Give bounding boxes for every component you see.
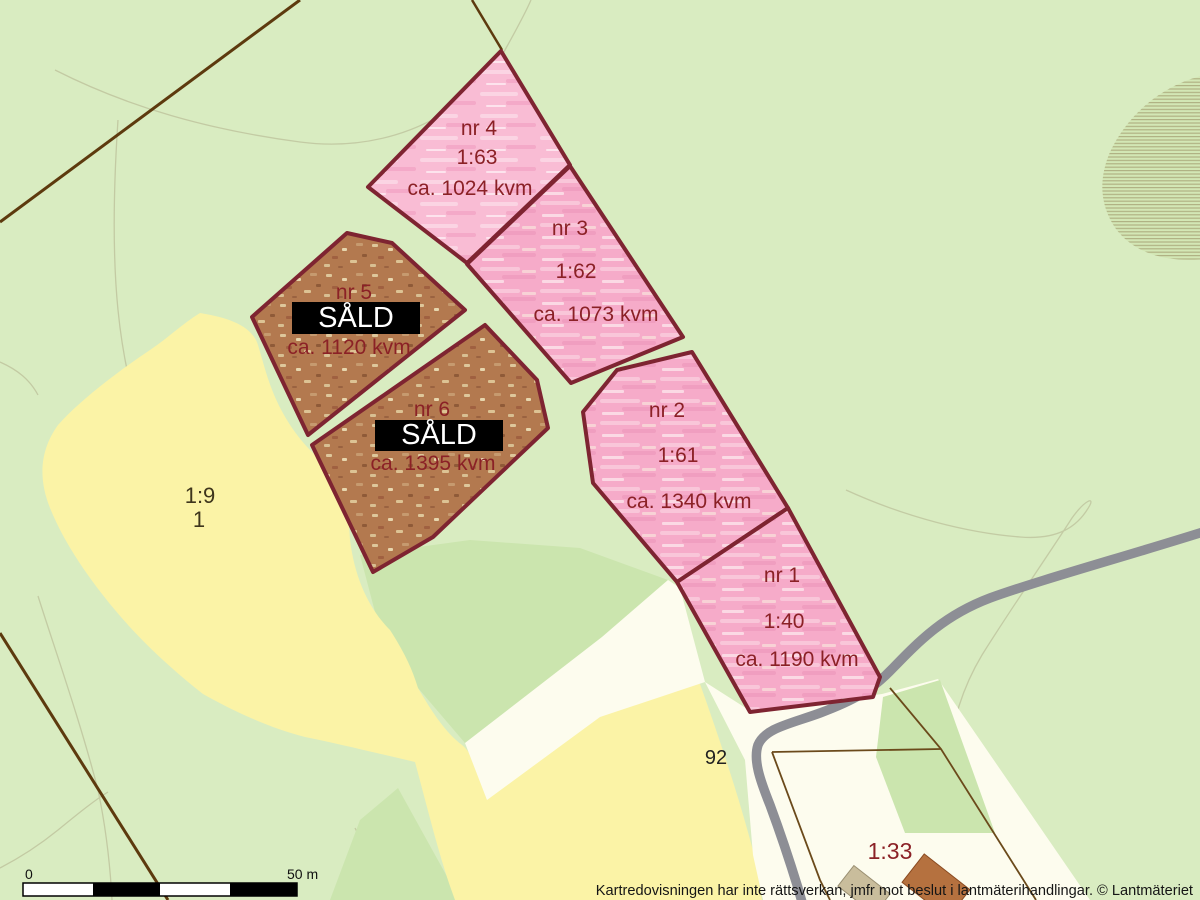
plot-area-label-nr1: ca. 1190 kvm bbox=[735, 648, 858, 671]
plot-area-label-nr6: ca. 1395 kvm bbox=[371, 452, 496, 475]
sold-badge-text-nr5: SÅLD bbox=[318, 301, 394, 334]
cadastral-map: nr 4 1:63 ca. 1024 kvm nr 3 1:62 ca. 107… bbox=[0, 0, 1200, 900]
map-canvas: nr 4 1:63 ca. 1024 kvm nr 3 1:62 ca. 107… bbox=[0, 0, 1200, 900]
plot-area-label-nr4: ca. 1024 kvm bbox=[408, 177, 533, 200]
plot-designation-nr1: 1:40 bbox=[764, 610, 805, 633]
scale-start-label: 0 bbox=[25, 866, 33, 882]
scale-bar-segment bbox=[93, 883, 160, 896]
field-sublabel: 1 bbox=[193, 507, 205, 532]
plot-name-nr2: nr 2 bbox=[649, 399, 685, 422]
plot-area-label-nr5: ca. 1120 kvm bbox=[287, 336, 410, 359]
sold-badge-text-nr6: SÅLD bbox=[401, 418, 477, 451]
plot-area-label-nr3: ca. 1073 kvm bbox=[534, 303, 659, 326]
road-number-label: 92 bbox=[705, 747, 727, 769]
plot-designation-nr3: 1:62 bbox=[556, 260, 597, 283]
plot-name-nr1: nr 1 bbox=[764, 564, 800, 587]
field-label: 1:9 bbox=[185, 483, 216, 508]
attribution: Kartredovisningen har inte rättsverkan, … bbox=[596, 883, 1193, 899]
scale-bar-segment bbox=[230, 883, 297, 896]
plot-designation-nr4: 1:63 bbox=[457, 146, 498, 169]
plot-name-nr4: nr 4 bbox=[461, 117, 498, 140]
plot-area-label-nr2: ca. 1340 kvm bbox=[627, 490, 752, 513]
scale-end-label: 50 m bbox=[287, 866, 318, 882]
plot-designation-nr2: 1:61 bbox=[658, 444, 699, 467]
plot-name-nr5: nr 5 bbox=[336, 281, 372, 304]
plot-name-nr6: nr 6 bbox=[414, 398, 450, 421]
property-label: 1:33 bbox=[868, 838, 913, 864]
plot-name-nr3: nr 3 bbox=[552, 217, 588, 240]
